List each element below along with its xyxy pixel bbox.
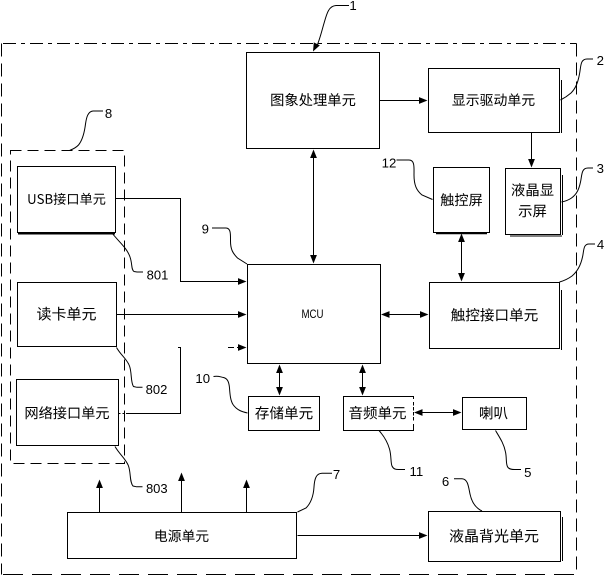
svg-text:3: 3 (597, 161, 604, 176)
svg-text:12: 12 (382, 156, 397, 171)
svg-text:10: 10 (195, 371, 210, 386)
svg-text:8: 8 (105, 106, 112, 121)
svg-text:5: 5 (524, 465, 531, 480)
svg-text:802: 802 (146, 382, 168, 397)
svg-text:2: 2 (597, 53, 604, 68)
svg-text:1: 1 (349, 0, 356, 13)
svg-text:11: 11 (410, 464, 424, 479)
svg-text:6: 6 (442, 474, 449, 489)
svg-text:9: 9 (202, 222, 209, 237)
svg-text:801: 801 (147, 268, 169, 283)
svg-text:803: 803 (146, 481, 168, 496)
svg-text:4: 4 (597, 237, 604, 252)
svg-text:MCU: MCU (302, 307, 324, 321)
svg-text:7: 7 (333, 467, 340, 482)
